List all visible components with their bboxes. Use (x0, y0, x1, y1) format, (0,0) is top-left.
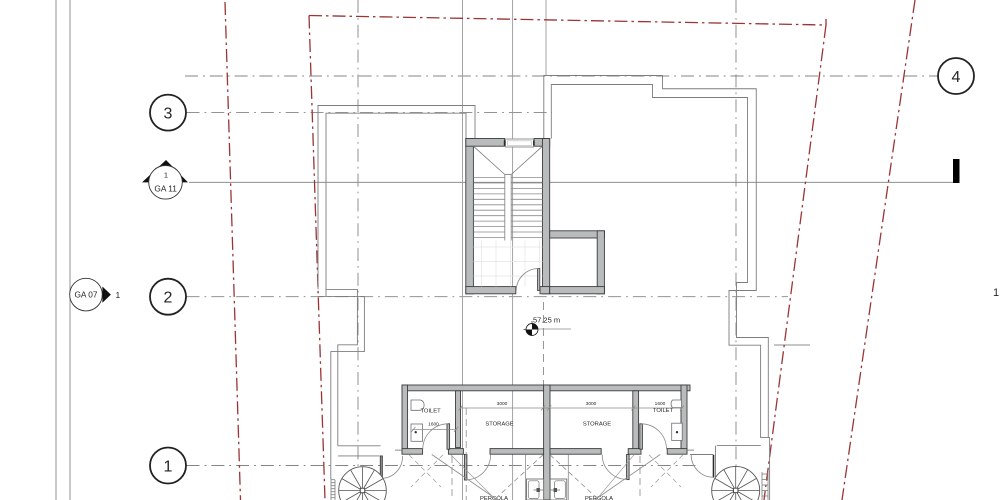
svg-text:GA 11: GA 11 (154, 184, 177, 194)
svg-text:STORAGE: STORAGE (583, 422, 611, 428)
svg-text:2: 2 (164, 290, 173, 307)
svg-text:1600: 1600 (428, 422, 439, 428)
svg-text:TOILET: TOILET (653, 408, 674, 414)
svg-text:1: 1 (116, 290, 121, 300)
svg-text:GA 07: GA 07 (74, 290, 97, 300)
svg-text:3000: 3000 (586, 401, 597, 407)
svg-text:STORAGE: STORAGE (485, 422, 513, 428)
svg-text:1600: 1600 (655, 401, 666, 407)
svg-text:3: 3 (164, 105, 173, 122)
svg-text:1: 1 (164, 170, 168, 179)
svg-text:1: 1 (993, 287, 999, 299)
svg-text:3000: 3000 (497, 401, 508, 407)
svg-text:57.25 m: 57.25 m (533, 316, 560, 325)
svg-text:1: 1 (164, 458, 173, 475)
svg-text:4: 4 (952, 69, 961, 86)
svg-text:TOILET: TOILET (421, 408, 442, 414)
